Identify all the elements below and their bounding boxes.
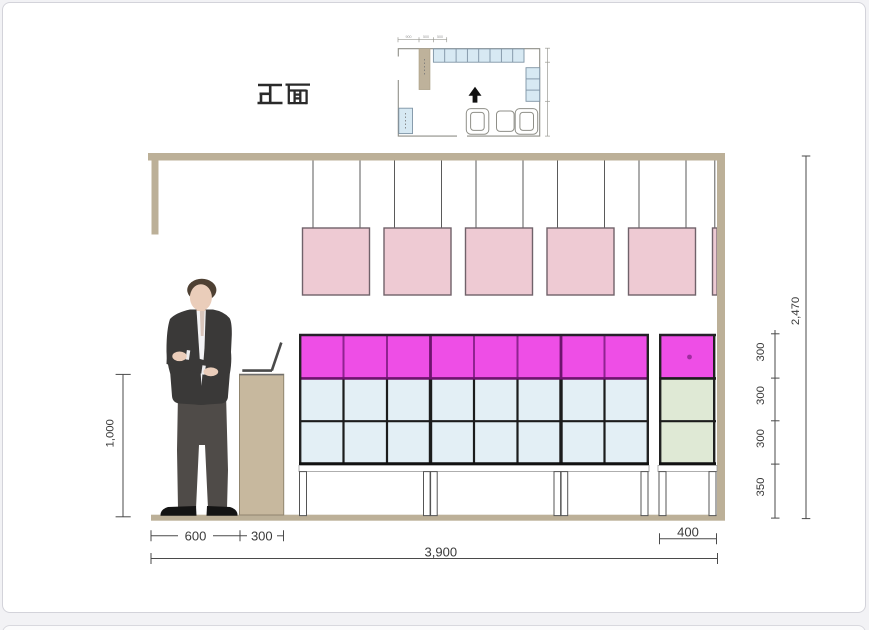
svg-text:3,900: 3,900	[425, 545, 458, 560]
svg-text:1,000: 1,000	[105, 419, 117, 447]
svg-text:300: 300	[755, 386, 767, 405]
svg-text:500: 500	[437, 35, 443, 39]
svg-text:600: 600	[185, 528, 207, 543]
svg-text:2,470: 2,470	[790, 297, 802, 325]
svg-text:500: 500	[423, 35, 429, 39]
svg-text:900: 900	[406, 35, 412, 39]
svg-text:300: 300	[755, 429, 767, 448]
svg-text:300: 300	[755, 343, 767, 362]
svg-text:350: 350	[755, 478, 767, 497]
svg-text:400: 400	[677, 525, 699, 540]
svg-text:300: 300	[251, 528, 273, 543]
